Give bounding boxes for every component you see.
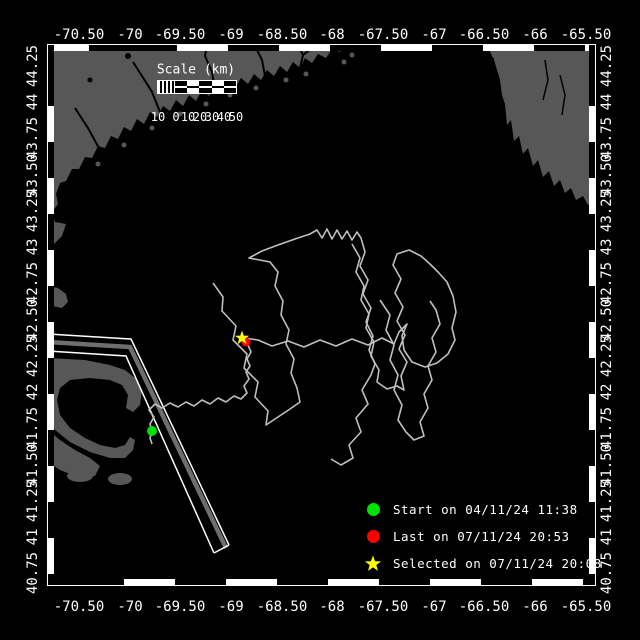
lon-label-bottom: -66: [522, 599, 547, 615]
lon-label-top: -66: [522, 27, 547, 43]
lon-label-top: -66.50: [459, 27, 510, 43]
lake: [125, 53, 131, 59]
lat-label-left: 44.25: [25, 45, 41, 87]
legend-start-label: Start on 04/11/24 11:38: [393, 502, 578, 517]
scale-bar-segment: [175, 81, 187, 93]
lon-label-top: -69.50: [155, 27, 206, 43]
lon-label-bottom: -69.50: [155, 599, 206, 615]
lat-label-right: 44.25: [599, 45, 615, 87]
lat-label-left: 40.75: [25, 552, 41, 594]
lat-label-left: 44: [25, 94, 41, 111]
lat-label-right: 42.75: [599, 262, 615, 304]
lat-label-right: 43: [599, 239, 615, 256]
scale-bar-segment: [212, 81, 224, 93]
lon-label-bottom: -65.50: [561, 599, 612, 615]
island-nantucket: [108, 473, 132, 485]
frame-bar-bottom: [48, 579, 595, 585]
scale-bar-hatch: [158, 81, 175, 93]
scale-bar-number: 0: [172, 110, 179, 124]
lon-label-top: -67.50: [358, 27, 409, 43]
lat-label-right: 44: [599, 94, 615, 111]
scale-bar-segment: [187, 81, 199, 93]
legend-last-label: Last on 07/11/24 20:53: [393, 529, 570, 544]
lat-label-left: 42.25: [25, 335, 41, 377]
scale-bar: [157, 80, 237, 94]
lon-label-top: -68.50: [257, 27, 308, 43]
lat-label-left: 43.75: [25, 117, 41, 159]
lon-label-top: -69: [218, 27, 243, 43]
lon-label-bottom: -67: [421, 599, 446, 615]
lon-label-bottom: -70: [117, 599, 142, 615]
lat-label-left: 41.75: [25, 407, 41, 449]
lat-label-left: 41.25: [25, 480, 41, 522]
lon-label-bottom: -67.50: [358, 599, 409, 615]
legend-selected-label: Selected on 07/11/24 20:08: [393, 556, 602, 571]
lat-label-right: 43.25: [599, 190, 615, 232]
scale-bar-title: Scale (km): [157, 63, 235, 78]
last-marker-icon: [363, 530, 383, 543]
selected-marker-icon: [363, 554, 383, 574]
lat-label-right: 43.75: [599, 117, 615, 159]
lon-label-bottom: -70.50: [54, 599, 105, 615]
lat-label-right: 42: [599, 384, 615, 401]
lon-label-bottom: -68: [319, 599, 344, 615]
lon-label-top: -67: [421, 27, 446, 43]
lon-label-bottom: -66.50: [459, 599, 510, 615]
start-marker-icon: [363, 503, 383, 516]
frame-bar-top: [48, 45, 595, 51]
legend-row-start: Start on 04/11/24 11:38: [363, 496, 602, 523]
lat-label-left: 43.25: [25, 190, 41, 232]
lon-label-bottom: -68.50: [257, 599, 308, 615]
lat-label-right: 42.25: [599, 335, 615, 377]
lat-label-left: 42.75: [25, 262, 41, 304]
lon-label-top: -70: [117, 27, 142, 43]
lat-label-left: 43: [25, 239, 41, 256]
legend-row-selected: Selected on 07/11/24 20:08: [363, 550, 602, 577]
lon-label-bottom: -69: [218, 599, 243, 615]
lake: [88, 78, 93, 83]
lat-label-right: 41.75: [599, 407, 615, 449]
scale-bar-segment: [199, 81, 211, 93]
island-marthas-vineyard: [67, 470, 93, 482]
lon-label-top: -68: [319, 27, 344, 43]
lat-label-left: 41: [25, 529, 41, 546]
scale-bar-number: 10: [151, 110, 165, 124]
lon-label-top: -65.50: [561, 27, 612, 43]
start-position-marker[interactable]: [147, 426, 157, 436]
frame-bar-left: [48, 45, 54, 585]
map-plot: -70.50 -70 -69.50 -69 -68.50 -68 -67.50 …: [0, 0, 640, 640]
legend-row-last: Last on 07/11/24 20:53: [363, 523, 602, 550]
scale-bar-number: 50: [229, 110, 243, 124]
lon-label-top: -70.50: [54, 27, 105, 43]
lat-label-left: 42: [25, 384, 41, 401]
scale-bar-segment: [224, 81, 236, 93]
track-legend: Start on 04/11/24 11:38 Last on 07/11/24…: [363, 496, 602, 577]
